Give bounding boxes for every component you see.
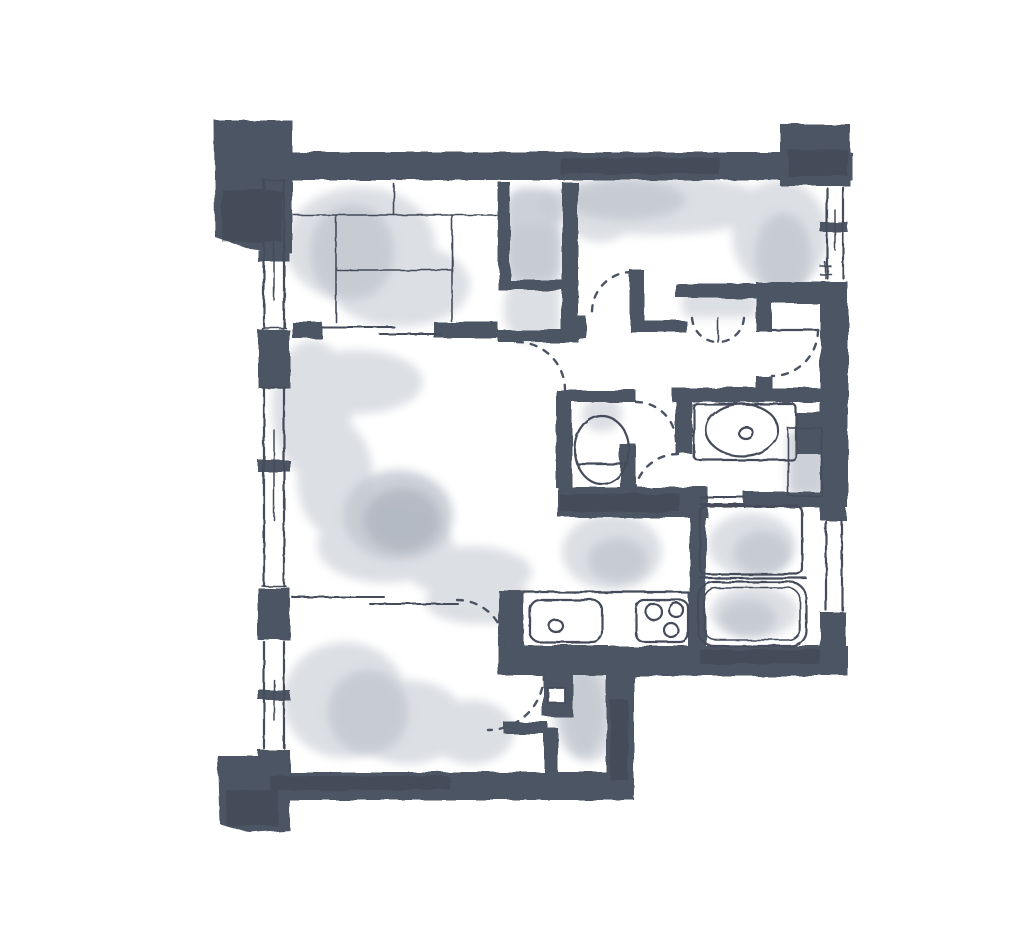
lower-closet-wash — [504, 292, 560, 326]
tatami-wash-core — [310, 204, 394, 300]
wall-corridor-v — [544, 728, 558, 774]
living-wash — [287, 350, 423, 414]
wall-bedroom-closet-top — [676, 284, 760, 298]
living-wash-dark — [364, 488, 440, 552]
bath-washarea-core — [734, 531, 790, 575]
wall-bedroom-h — [630, 320, 686, 332]
wall-washroom-top — [672, 388, 848, 402]
wall-left-block-2 — [258, 588, 290, 640]
kitchen-counter-face — [524, 594, 686, 644]
wall-vanity-notch — [796, 412, 820, 454]
wall-right-entry — [820, 304, 848, 390]
stub-opening — [548, 688, 565, 703]
wall-top — [256, 152, 852, 180]
wall-tatami-bottom-b — [434, 322, 498, 338]
shade — [560, 494, 680, 512]
shade — [788, 150, 848, 176]
shade — [270, 776, 450, 790]
wall-bath-right-a — [820, 500, 846, 520]
bathtub-core — [720, 600, 776, 636]
closet-wash-core — [506, 188, 560, 282]
shade — [560, 158, 720, 174]
shade — [610, 700, 628, 780]
wall-washroom-right — [820, 402, 848, 500]
shade — [222, 190, 282, 242]
dining-wash-core — [588, 538, 648, 582]
wall-toilet-left — [556, 396, 572, 488]
bedroom2-wash-core — [328, 670, 408, 754]
wall-closet-step — [562, 316, 586, 338]
bedroom-wash-core — [565, 180, 685, 220]
wall-bath-right-b — [820, 612, 846, 648]
wall-kitchen-left — [498, 590, 524, 648]
floor-plan-page — [0, 0, 1024, 929]
wash-layer-dark — [364, 488, 440, 552]
bedroom2-wash — [430, 700, 514, 764]
wall-closet-left — [498, 182, 510, 288]
shade — [700, 650, 820, 664]
wall-closet-shelf — [498, 280, 562, 290]
wall-counter-bottom — [498, 645, 608, 675]
wall-lower-closet-bottom — [498, 330, 564, 342]
wall-left-block-1 — [258, 330, 290, 388]
wall-corridor-h — [504, 722, 548, 734]
floor-plan-canvas — [0, 0, 1024, 929]
wall-washroom-left — [676, 388, 692, 454]
wall-tatami-bottom-a — [292, 322, 322, 338]
wall-toilet-top — [556, 390, 636, 402]
shade — [226, 790, 278, 826]
